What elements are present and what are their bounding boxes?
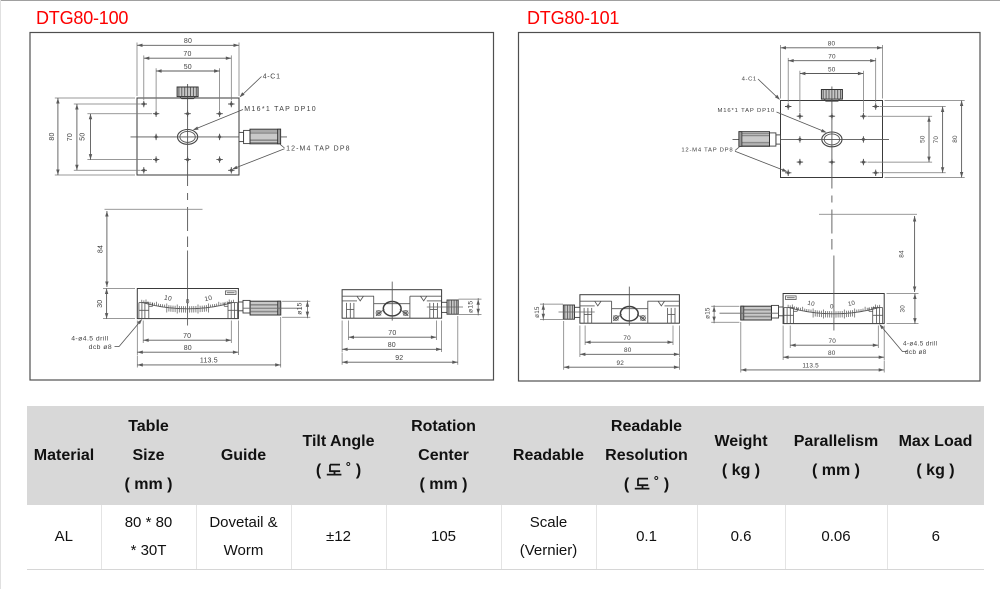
svg-text:10: 10 — [847, 299, 856, 307]
svg-text:80: 80 — [49, 132, 56, 140]
svg-text:80: 80 — [828, 41, 836, 48]
svg-text:80: 80 — [952, 135, 959, 143]
svg-text:4-C1: 4-C1 — [742, 76, 757, 82]
svg-text:dcb ø8: dcb ø8 — [905, 349, 927, 356]
svg-text:70: 70 — [623, 335, 631, 342]
svg-text:4-C1: 4-C1 — [263, 73, 281, 80]
svg-text:70: 70 — [183, 333, 191, 340]
svg-text:ø15: ø15 — [534, 306, 541, 318]
svg-text:50: 50 — [184, 64, 192, 71]
svg-text:80: 80 — [624, 347, 632, 354]
svg-text:30: 30 — [97, 300, 104, 308]
svg-text:50: 50 — [920, 135, 927, 143]
svg-text:70: 70 — [388, 330, 396, 337]
svg-text:12-M4 TAP DP8: 12-M4 TAP DP8 — [286, 145, 351, 152]
svg-text:0: 0 — [830, 303, 834, 310]
svg-text:92: 92 — [395, 355, 403, 362]
svg-text:10: 10 — [204, 295, 213, 303]
svg-text:80: 80 — [184, 38, 192, 45]
svg-text:70: 70 — [933, 136, 940, 144]
svg-text:84: 84 — [98, 245, 105, 253]
svg-text:70: 70 — [828, 54, 836, 61]
svg-text:113.5: 113.5 — [802, 363, 819, 370]
svg-text:ø15: ø15 — [297, 302, 304, 314]
svg-text:80: 80 — [388, 342, 396, 349]
svg-text:70: 70 — [183, 51, 191, 58]
svg-text:4-ø4.5 drill: 4-ø4.5 drill — [903, 341, 938, 348]
svg-text:84: 84 — [899, 250, 906, 258]
svg-text:70: 70 — [67, 133, 74, 141]
svg-text:50: 50 — [828, 66, 836, 73]
svg-text:12-M4 TAP DP8: 12-M4 TAP DP8 — [681, 147, 733, 153]
svg-text:113.5: 113.5 — [200, 358, 218, 365]
svg-text:0: 0 — [186, 298, 190, 305]
svg-text:ø15: ø15 — [705, 307, 712, 319]
svg-text:dcb ø8: dcb ø8 — [89, 344, 112, 351]
svg-text:4-ø4.5 drill: 4-ø4.5 drill — [71, 336, 109, 343]
svg-text:50: 50 — [79, 133, 86, 141]
svg-text:80: 80 — [184, 345, 192, 352]
svg-text:10: 10 — [163, 295, 172, 303]
svg-text:70: 70 — [829, 338, 837, 345]
svg-text:M16*1 TAP DP10: M16*1 TAP DP10 — [244, 106, 317, 113]
svg-text:80: 80 — [828, 350, 836, 357]
svg-text:10: 10 — [807, 300, 816, 308]
svg-text:M16*1 TAP DP10: M16*1 TAP DP10 — [717, 108, 775, 114]
svg-text:92: 92 — [616, 360, 624, 367]
svg-text:30: 30 — [900, 305, 907, 313]
svg-text:ø15: ø15 — [468, 301, 475, 313]
